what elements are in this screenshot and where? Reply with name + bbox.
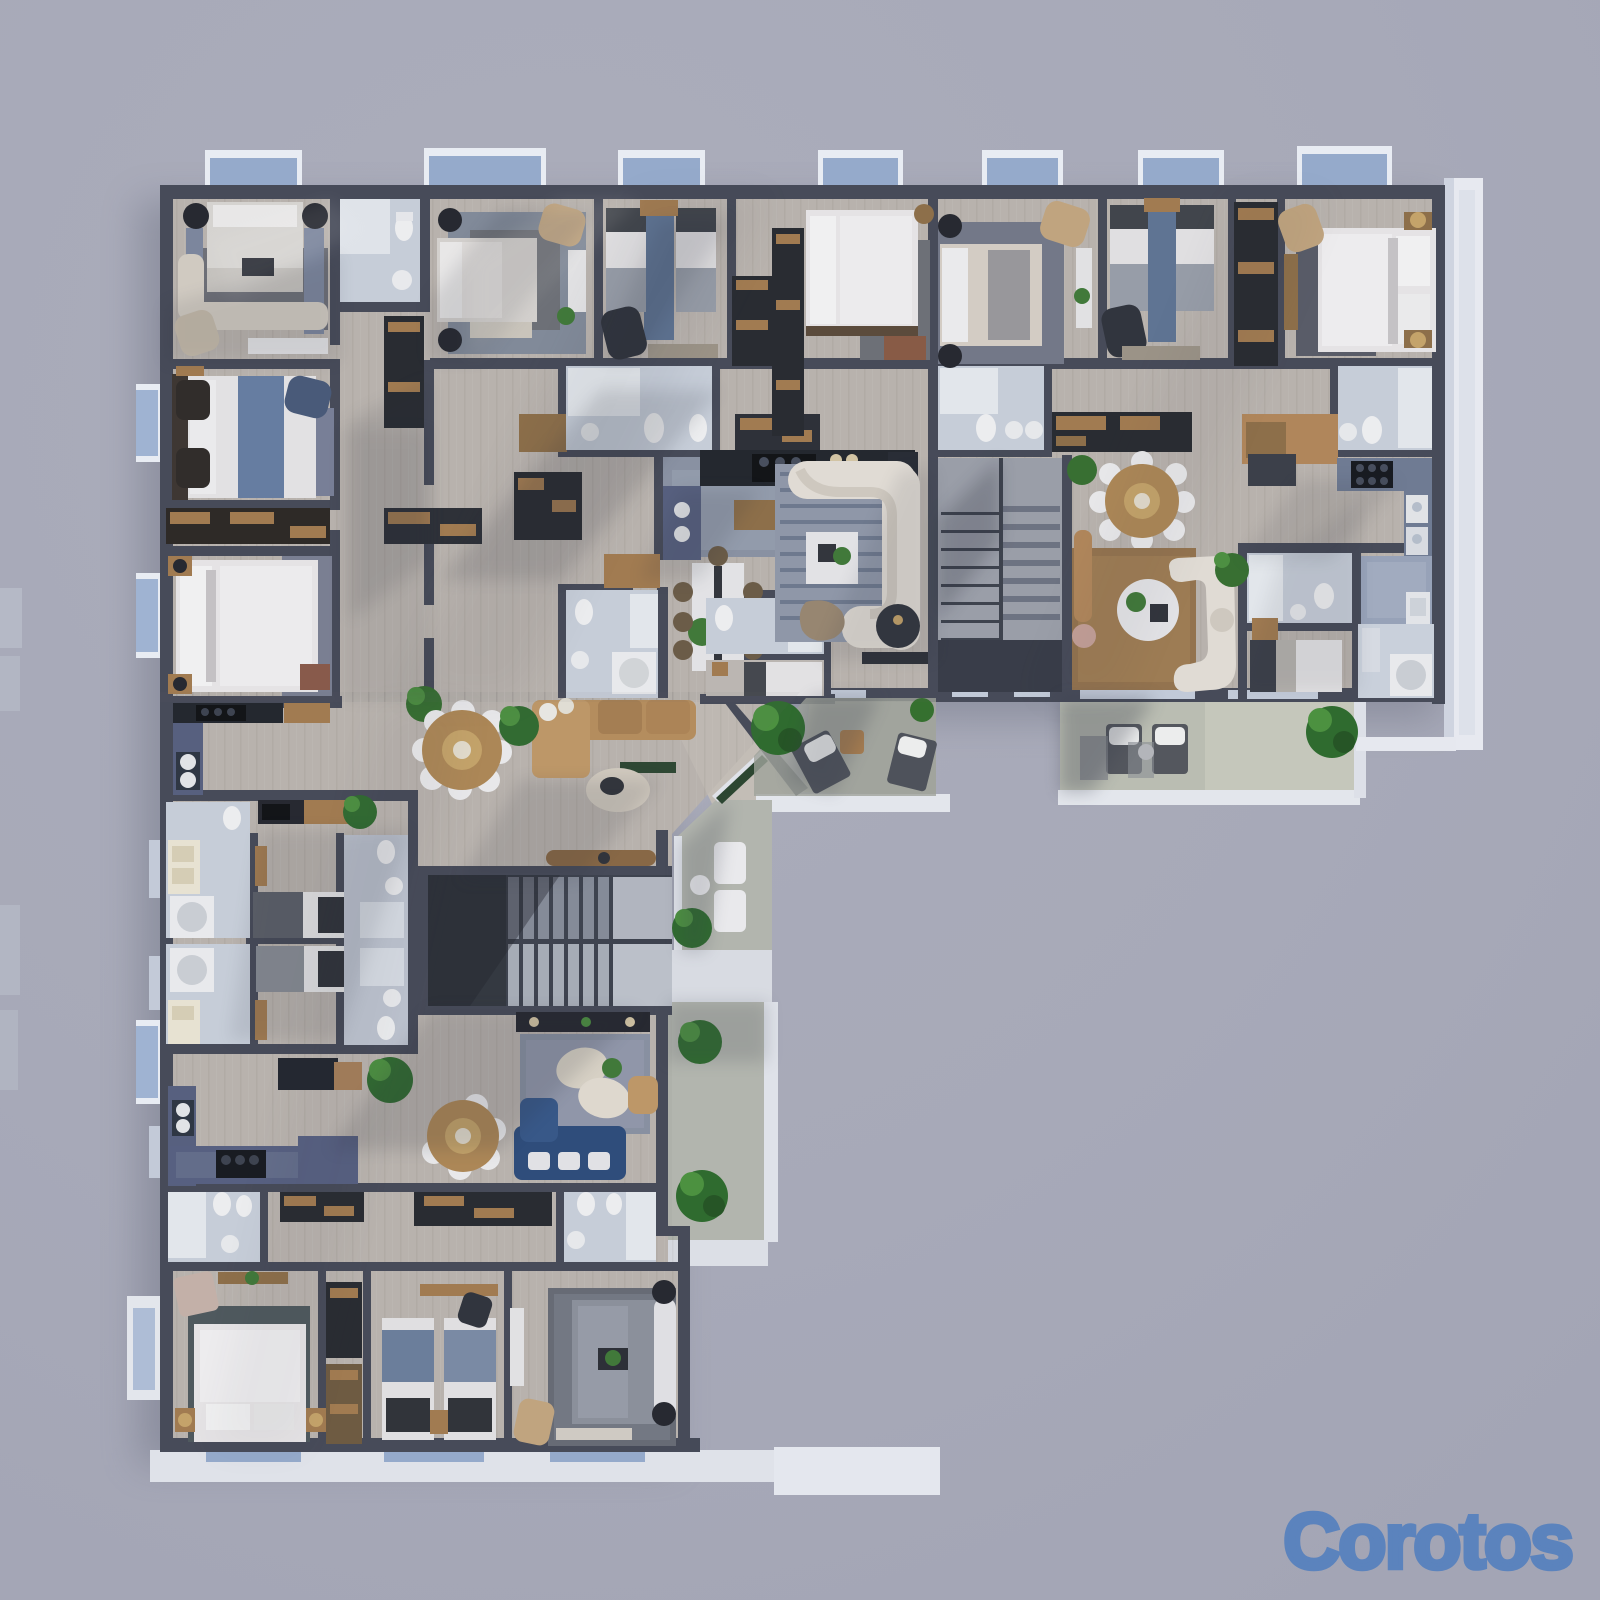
svg-text:Corotos: Corotos xyxy=(1283,1496,1572,1585)
